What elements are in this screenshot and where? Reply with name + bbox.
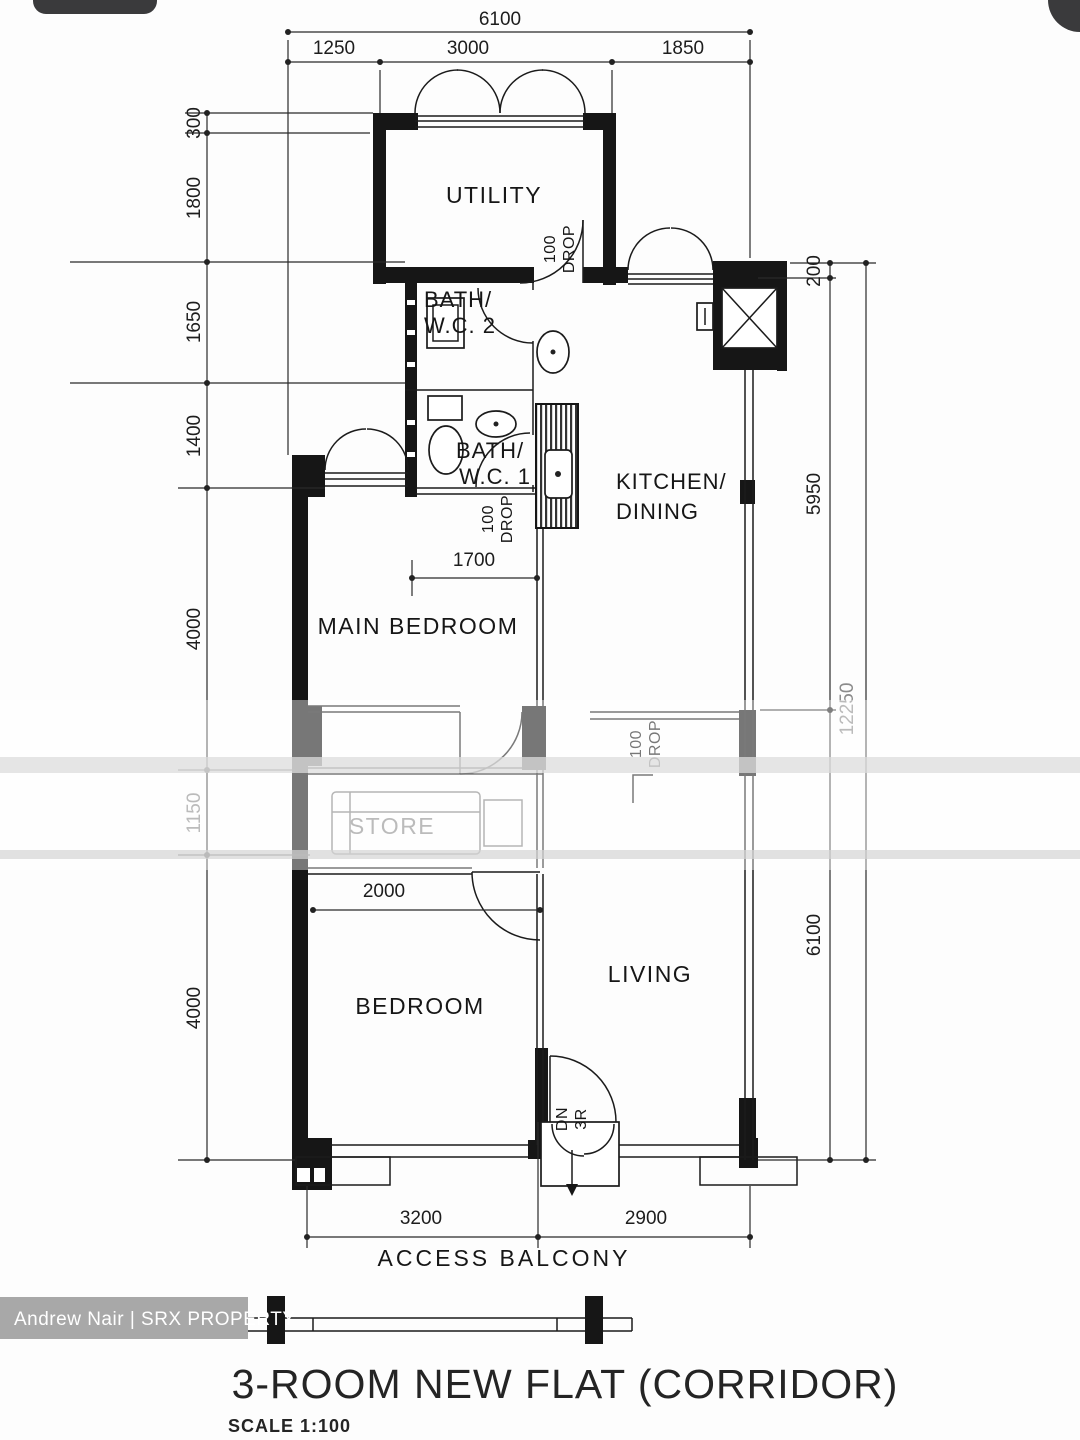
plan-scale: SCALE 1:100 [228,1416,351,1436]
label-access-balcony: ACCESS BALCONY [378,1245,631,1271]
dim-left-1400: 1400 [184,415,205,457]
title-block: 3-ROOM NEW FLAT (CORRIDOR) SCALE 1:100 [228,1361,898,1436]
dim-bottom-2900: 2900 [625,1208,667,1229]
svg-text:3R: 3R [573,1108,590,1129]
dim-store-2000: 2000 [363,881,405,902]
svg-text:100: 100 [542,235,559,263]
svg-text:DROP: DROP [561,225,578,273]
top-right-corner [1048,0,1080,32]
dimensions-top: 6100 1250 3000 1850 [285,9,753,455]
drop-notes: 100 DROP 100 DROP 100 DROP DN 3R [480,225,664,1131]
watermark-band [0,700,1080,870]
dim-top-3000: 3000 [447,38,489,59]
dim-top-total: 6100 [479,9,521,30]
dim-left-300: 300 [184,107,205,139]
label-bath2-line2: W.C. 2 [424,313,496,338]
floor-plan-page: 6100 1250 3000 1850 300 1800 1650 1400 4… [0,0,1080,1440]
svg-text:100: 100 [480,505,497,533]
watermark-credit: Andrew Nair | SRX PROPERTY [0,1297,296,1339]
dim-left-4000b: 4000 [184,987,205,1029]
dim-bedroom-1700: 1700 [453,550,495,571]
ui-corners [33,0,1080,32]
note-drop-bath1: 100 DROP [480,495,516,543]
label-living: LIVING [608,961,692,987]
label-bath2-line1: BATH/ [424,287,492,312]
note-drop-utility: 100 DROP [542,225,578,273]
label-bath1-line1: BATH/ [456,438,524,463]
label-main-bedroom: MAIN BEDROOM [318,613,519,639]
dim-right-5950: 5950 [804,473,825,515]
dim-left-4000a: 4000 [184,608,205,650]
dim-right-200: 200 [804,255,825,287]
dim-top-1250: 1250 [313,38,355,59]
dim-right-6100: 6100 [804,914,825,956]
label-bedroom: BEDROOM [355,993,484,1019]
svg-text:DN: DN [554,1107,571,1131]
top-left-pill [33,0,157,14]
floor-plan-drawing: 6100 1250 3000 1850 300 1800 1650 1400 4… [0,0,1080,1440]
label-kitchen-line1: KITCHEN/ [616,469,727,494]
plan-title: 3-ROOM NEW FLAT (CORRIDOR) [232,1361,899,1407]
label-bath1-line2: W.C. 1 [459,464,531,489]
dim-left-1800: 1800 [184,177,205,219]
label-utility: UTILITY [446,182,542,208]
dim-bottom-3200: 3200 [400,1208,442,1229]
dim-top-1850: 1850 [662,38,704,59]
label-kitchen-line2: DINING [616,499,699,524]
dim-left-1650: 1650 [184,301,205,343]
watermark-credit-text: Andrew Nair | SRX PROPERTY [14,1309,296,1330]
svg-text:DROP: DROP [499,495,516,543]
